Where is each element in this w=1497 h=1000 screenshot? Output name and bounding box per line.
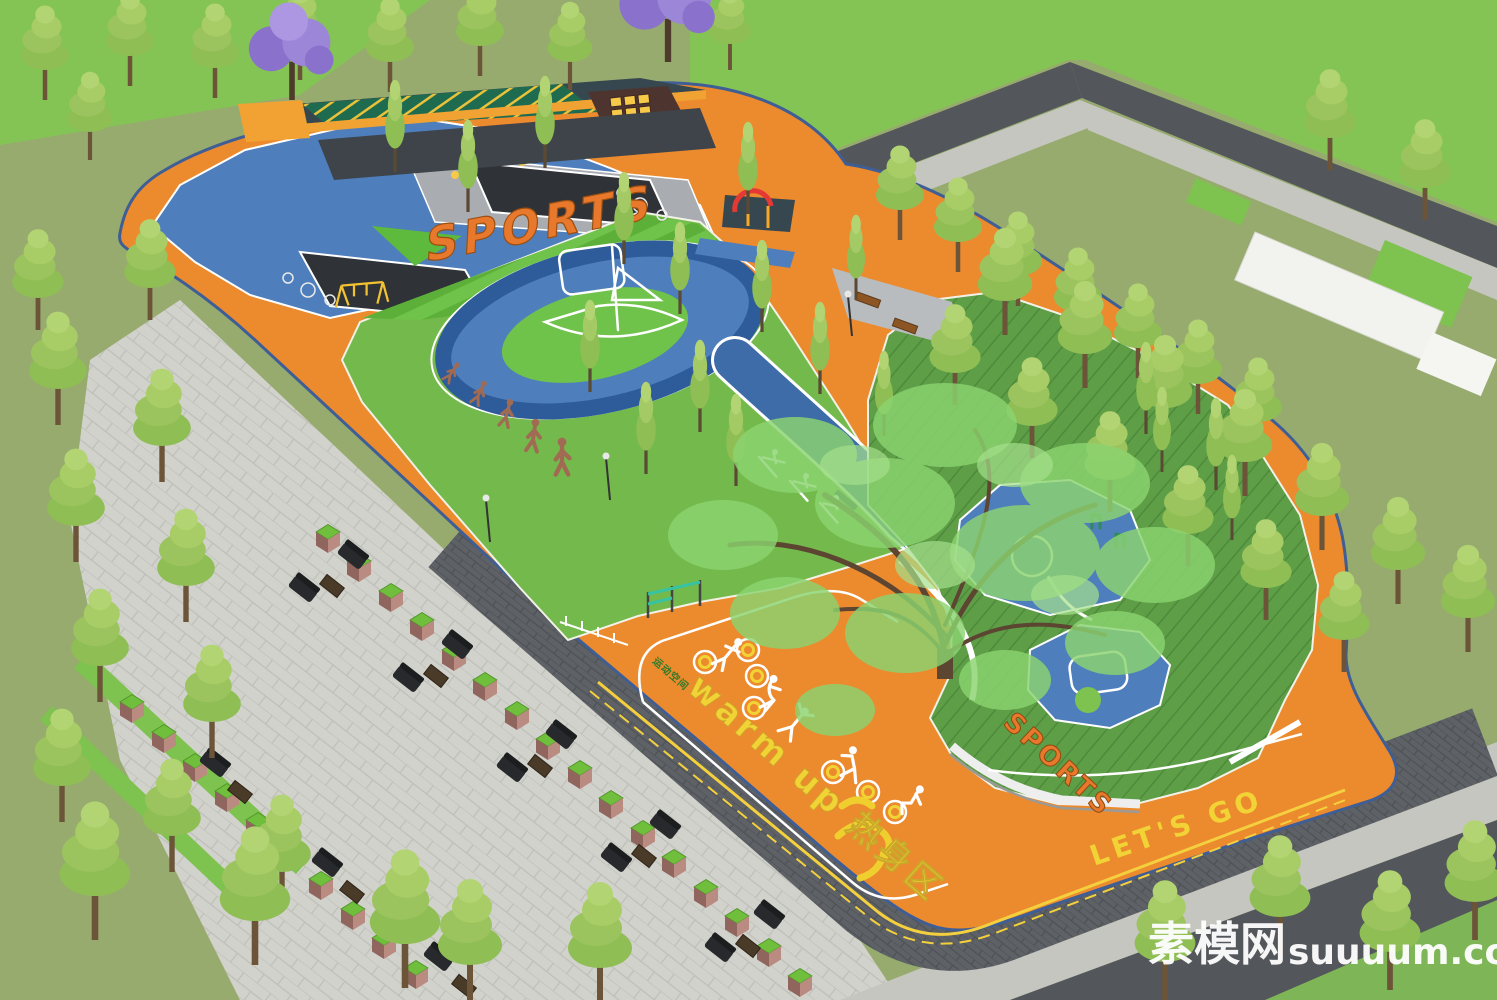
yellow-dot xyxy=(451,171,459,179)
aerial-park-scene: SPORTS warm up 热身区 LET'S GO SPORTS 运动空间 xyxy=(0,0,1497,1000)
building-end-box xyxy=(238,100,310,142)
watermark-en: suuuum.com xyxy=(1288,932,1497,973)
park-render: SPORTS warm up 热身区 LET'S GO SPORTS 运动空间 xyxy=(0,0,1497,1000)
watermark-cn: 素模网 xyxy=(1148,917,1286,971)
pond-island xyxy=(1075,687,1101,713)
